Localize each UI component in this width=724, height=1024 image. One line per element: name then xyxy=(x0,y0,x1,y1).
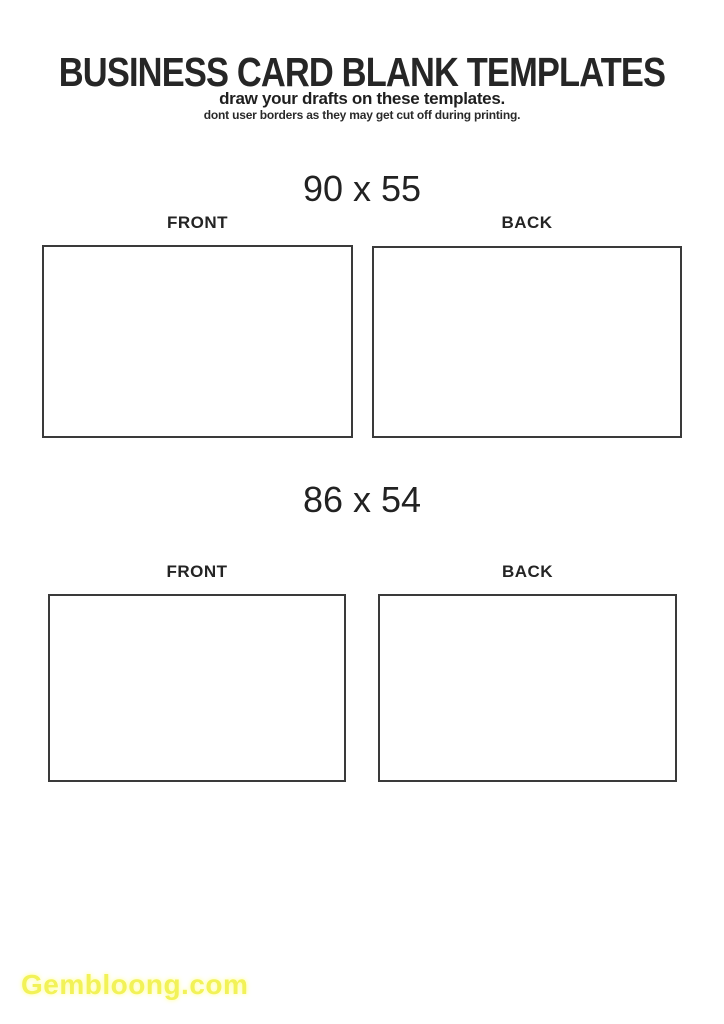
back-label-90x55: BACK xyxy=(372,213,682,233)
card-template-86x54-back xyxy=(378,594,677,782)
back-label-86x54: BACK xyxy=(378,562,677,582)
section-title-86x54: 86 x 54 xyxy=(0,479,724,521)
page-note: dont user borders as they may get cut of… xyxy=(0,108,724,122)
front-label-90x55: FRONT xyxy=(42,213,353,233)
page-subtitle: draw your drafts on these templates. xyxy=(0,89,724,109)
template-sheet: BUSINESS CARD BLANK TEMPLATES draw your … xyxy=(0,0,724,1024)
watermark: Gembloong.com xyxy=(21,969,248,1001)
card-template-90x55-front xyxy=(42,245,353,438)
card-template-90x55-back xyxy=(372,246,682,438)
card-template-86x54-front xyxy=(48,594,346,782)
section-title-90x55: 90 x 55 xyxy=(0,168,724,210)
front-label-86x54: FRONT xyxy=(48,562,346,582)
